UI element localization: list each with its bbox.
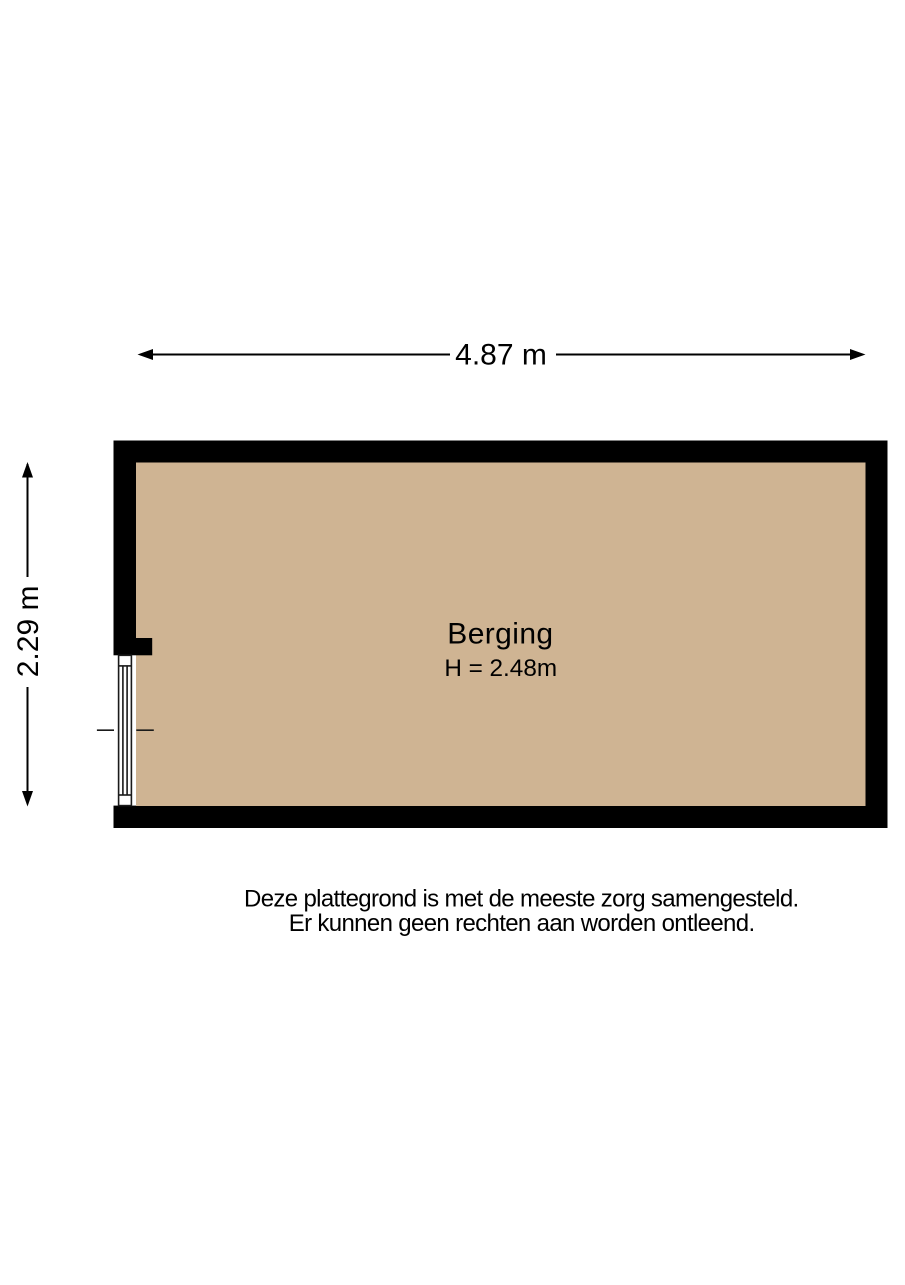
svg-text:Deze plattegrond is met de mee: Deze plattegrond is met de meeste zorg s… (244, 886, 799, 913)
svg-text:H = 2.48m: H = 2.48m (444, 655, 557, 682)
svg-text:2.29 m: 2.29 m (12, 586, 45, 678)
svg-text:Er kunnen geen rechten aan wor: Er kunnen geen rechten aan worden ontlee… (289, 910, 755, 937)
svg-text:4.87 m: 4.87 m (455, 339, 547, 372)
svg-text:Berging: Berging (447, 618, 553, 651)
